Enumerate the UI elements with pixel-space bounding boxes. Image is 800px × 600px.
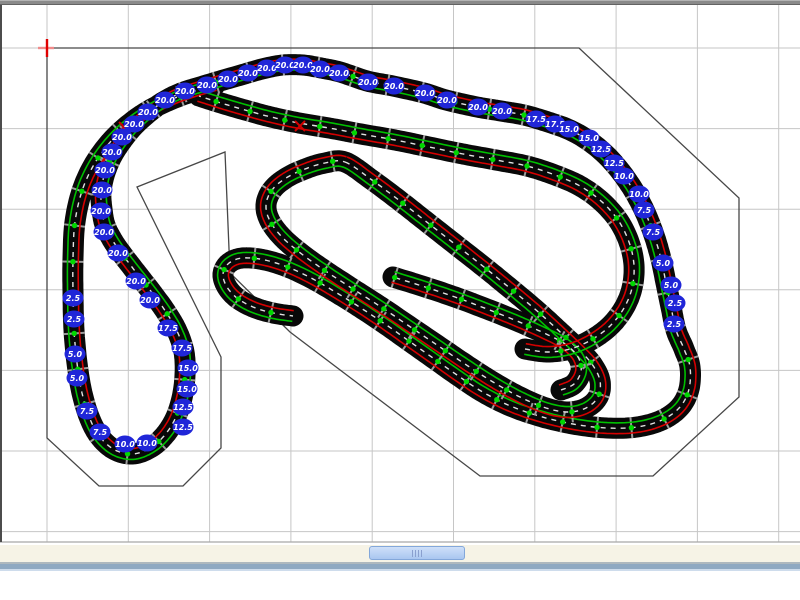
elevation-label[interactable]: 20.0 (95, 162, 116, 179)
track-joint-dot[interactable] (484, 267, 489, 272)
track-joint-dot[interactable] (494, 310, 499, 315)
elevation-label-value: 7.5 (80, 407, 95, 416)
elevation-label[interactable]: 20.0 (175, 83, 196, 100)
elevation-label-value: 15.0 (178, 364, 198, 373)
track-joint-dot[interactable] (247, 109, 252, 114)
track-joint-dot[interactable] (381, 306, 386, 311)
track-joint-dot[interactable] (590, 336, 595, 341)
elevation-label-value: 5.0 (664, 281, 679, 290)
track-joint-dot[interactable] (443, 348, 448, 353)
elevation-label[interactable]: 17.5 (158, 320, 179, 337)
elevation-label-value: 20.0 (102, 148, 122, 157)
track-joint-dot[interactable] (372, 179, 377, 184)
elevation-label[interactable]: 20.0 (102, 144, 123, 161)
elevation-label[interactable]: 20.0 (155, 92, 176, 109)
elevation-label-value: 5.0 (68, 350, 83, 359)
track-joint-dot[interactable] (378, 318, 383, 323)
elevation-label[interactable]: 20.0 (94, 224, 115, 241)
track-joint-dot[interactable] (594, 425, 599, 430)
track-joint-dot[interactable] (524, 163, 529, 168)
elevation-label[interactable]: 20.0 (126, 273, 147, 290)
elevation-label-value: 17.5 (158, 324, 178, 333)
elevation-label-value: 20.0 (218, 75, 238, 84)
elevation-label-value: 12.5 (173, 403, 193, 412)
track-joint-dot[interactable] (350, 286, 355, 291)
elevation-label[interactable]: 20.0 (492, 103, 513, 120)
elevation-label-value: 2.5 (66, 294, 81, 303)
elevation-label[interactable]: 20.0 (92, 182, 113, 199)
track-joint-dot[interactable] (268, 310, 273, 315)
track-joint-dot[interactable] (317, 280, 322, 285)
track-joint-dot[interactable] (72, 331, 77, 336)
elevation-label[interactable]: 20.0 (197, 77, 218, 94)
elevation-label[interactable]: 20.0 (108, 245, 129, 262)
track-joint-dot[interactable] (490, 157, 495, 162)
elevation-label[interactable]: 12.5 (173, 419, 194, 436)
track-joint-dot[interactable] (597, 391, 602, 396)
elevation-label-value: 20.0 (108, 249, 128, 258)
elevation-label[interactable]: 2.5 (64, 311, 85, 328)
elevation-label[interactable]: 2.5 (664, 316, 685, 333)
track-joint-dot[interactable] (560, 419, 565, 424)
elevation-label-value: 20.0 (155, 96, 175, 105)
elevation-label[interactable]: 12.5 (173, 399, 194, 416)
track-joint-dot[interactable] (459, 297, 464, 302)
track-joint-dot[interactable] (569, 409, 574, 414)
elevation-label[interactable]: 17.5 (172, 340, 193, 357)
elevation-label[interactable]: 10.0 (115, 436, 136, 453)
elevation-label-value: 7.5 (637, 206, 652, 215)
track-joint-dot[interactable] (296, 169, 301, 174)
elevation-label[interactable]: 7.5 (77, 403, 98, 420)
track-joint-dot[interactable] (420, 143, 425, 148)
elevation-label[interactable]: 20.0 (138, 104, 159, 121)
elevation-label-value: 12.5 (173, 423, 193, 432)
elevation-label-value: 5.0 (70, 374, 85, 383)
track-joint-dot[interactable] (412, 327, 417, 332)
elevation-label-value: 5.0 (656, 259, 671, 268)
elevation-label[interactable]: 12.5 (591, 141, 612, 158)
horizontal-scrollbar[interactable] (0, 545, 800, 562)
elevation-label-value: 20.0 (384, 82, 404, 91)
elevation-label[interactable]: 5.0 (661, 277, 682, 294)
track-joint-dot[interactable] (72, 223, 77, 228)
track-joint-dot[interactable] (527, 410, 532, 415)
elevation-label-value: 17.5 (526, 115, 546, 124)
elevation-label-value: 20.0 (310, 65, 330, 74)
elevation-label[interactable]: 20.0 (384, 78, 405, 95)
elevation-label[interactable]: 2.5 (63, 290, 84, 307)
elevation-label-value: 20.0 (91, 207, 111, 216)
elevation-label[interactable]: 15.0 (559, 121, 580, 138)
elevation-label[interactable]: 7.5 (90, 424, 111, 441)
track-joint-dot[interactable] (79, 189, 84, 194)
track-joint-dot[interactable] (294, 247, 299, 252)
elevation-label[interactable]: 20.0 (218, 71, 239, 88)
elevation-label-value: 12.5 (591, 145, 611, 154)
elevation-label-value: 20.0 (138, 108, 158, 117)
elevation-label-value: 20.0 (126, 277, 146, 286)
elevation-label[interactable]: 7.5 (643, 224, 664, 241)
track-joint-dot[interactable] (504, 387, 509, 392)
track-joint-dot[interactable] (330, 159, 335, 164)
track-joint-dot[interactable] (456, 245, 461, 250)
track-joint-dot[interactable] (628, 246, 633, 251)
elevation-label-value: 20.0 (112, 133, 132, 142)
elevation-label[interactable]: 20.0 (415, 85, 436, 102)
elevation-label-value: 2.5 (67, 315, 82, 324)
track-editor-window: 20.020.020.020.020.020.020.020.020.020.0… (0, 0, 800, 600)
elevation-label[interactable]: 15.0 (177, 381, 198, 398)
elevation-label-value: 20.0 (358, 78, 378, 87)
elevation-label-value: 10.0 (629, 190, 649, 199)
elevation-label[interactable]: 10.0 (629, 186, 650, 203)
elevation-label-value: 10.0 (137, 439, 157, 448)
elevation-label-value: 20.0 (197, 81, 217, 90)
elevation-label-value: 20.0 (95, 166, 115, 175)
track-joint-dot[interactable] (428, 223, 433, 228)
track-joint-dot[interactable] (511, 288, 516, 293)
track-joint-dot[interactable] (406, 338, 411, 343)
elevation-label[interactable]: 5.0 (653, 255, 674, 272)
elevation-label-value: 20.0 (175, 87, 195, 96)
elevation-label[interactable]: 2.5 (665, 295, 686, 312)
elevation-label-value: 20.0 (124, 120, 144, 129)
track-joint-dot[interactable] (317, 124, 322, 129)
elevation-label-value: 20.0 (415, 89, 435, 98)
track-joint-dot[interactable] (588, 190, 593, 195)
elevation-label[interactable]: 5.0 (67, 370, 88, 387)
elevation-label-value: 20.0 (437, 96, 457, 105)
track-joint-dot[interactable] (684, 392, 689, 397)
track-joint-dot[interactable] (536, 403, 541, 408)
track-joint-dot[interactable] (426, 285, 431, 290)
track-joint-dot[interactable] (236, 296, 241, 301)
elevation-label[interactable]: 20.0 (437, 92, 458, 109)
track-joint-dot[interactable] (70, 259, 75, 264)
track-joint-dot[interactable] (349, 299, 354, 304)
track-joint-dot[interactable] (252, 256, 257, 261)
elevation-label[interactable]: 7.5 (634, 202, 655, 219)
elevation-label[interactable]: 20.0 (329, 65, 350, 82)
elevation-label[interactable]: 20.0 (358, 74, 379, 91)
track-joint-dot[interactable] (686, 357, 691, 362)
elevation-label-value: 7.5 (646, 228, 661, 237)
elevation-label-value: 20.0 (238, 69, 258, 78)
track-joint-dot[interactable] (630, 281, 635, 286)
elevation-label-value: 2.5 (667, 320, 682, 329)
scrollbar-grip-icon (412, 550, 424, 557)
elevation-label-value: 15.0 (177, 385, 197, 394)
statusbar-lower-band (0, 569, 800, 571)
track-joint-dot[interactable] (538, 311, 543, 316)
elevation-label[interactable]: 20.0 (468, 99, 489, 116)
elevation-label-value: 20.0 (94, 228, 114, 237)
track-joint-dot[interactable] (661, 416, 666, 421)
track-joint-dot[interactable] (526, 323, 531, 328)
track-joint-dot[interactable] (494, 397, 499, 402)
elevation-label-value: 17.5 (172, 344, 192, 353)
track-joint-dot[interactable] (269, 222, 274, 227)
track-joint-dot[interactable] (464, 379, 469, 384)
track-joint-dot[interactable] (285, 264, 290, 269)
track-joint-dot[interactable] (614, 215, 619, 220)
track-joint-dot[interactable] (95, 155, 100, 160)
track-joint-dot[interactable] (558, 348, 563, 353)
track-joint-dot[interactable] (213, 99, 218, 104)
track-joint-dot[interactable] (392, 275, 397, 280)
track-joint-dot[interactable] (629, 425, 634, 430)
track-joint-dot[interactable] (352, 130, 357, 135)
track-design-canvas[interactable]: 20.020.020.020.020.020.020.020.020.020.0… (0, 0, 800, 600)
track-joint-dot[interactable] (400, 200, 405, 205)
track-joint-dot[interactable] (164, 311, 169, 316)
elevation-label[interactable]: 20.0 (310, 61, 331, 78)
elevation-label-value: 12.5 (604, 159, 624, 168)
track-joint-dot[interactable] (282, 117, 287, 122)
track-joint-dot[interactable] (578, 363, 583, 368)
elevation-label[interactable]: 15.0 (178, 360, 199, 377)
elevation-label-value: 20.0 (140, 296, 160, 305)
track-joint-dot[interactable] (322, 268, 327, 273)
track-joint-dot[interactable] (385, 136, 390, 141)
track-joint-dot[interactable] (474, 369, 479, 374)
track-joint-dot[interactable] (268, 189, 273, 194)
elevation-label-value: 10.0 (115, 440, 135, 449)
elevation-label[interactable]: 20.0 (238, 65, 259, 82)
elevation-label[interactable]: 10.0 (137, 435, 158, 452)
elevation-label-value: 20.0 (492, 107, 512, 116)
elevation-label-value: 15.0 (559, 125, 579, 134)
canvas-left-border (0, 5, 2, 542)
elevation-label-value: 10.0 (614, 172, 634, 181)
elevation-label-value: 2.5 (668, 299, 683, 308)
elevation-label[interactable]: 20.0 (91, 203, 112, 220)
elevation-label-value: 20.0 (329, 69, 349, 78)
horizontal-scrollbar-thumb[interactable] (369, 546, 465, 560)
track-joint-dot[interactable] (558, 174, 563, 179)
elevation-label[interactable]: 17.5 (526, 111, 547, 128)
track-joint-dot[interactable] (454, 150, 459, 155)
elevation-label-value: 20.0 (468, 103, 488, 112)
track-joint-dot[interactable] (616, 313, 621, 318)
elevation-label[interactable]: 20.0 (140, 292, 161, 309)
elevation-label[interactable]: 10.0 (614, 168, 635, 185)
track-joint-dot[interactable] (350, 74, 355, 79)
elevation-label[interactable]: 5.0 (65, 346, 86, 363)
elevation-label-value: 7.5 (93, 428, 108, 437)
track-joint-dot[interactable] (221, 267, 226, 272)
elevation-label-value: 20.0 (92, 186, 112, 195)
